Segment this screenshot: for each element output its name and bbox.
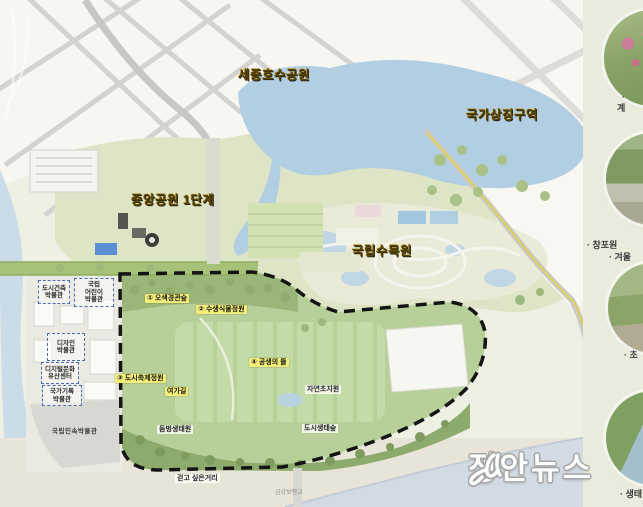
label-symbol-zone: 국가상징구역 (466, 104, 538, 123)
museum-label-line: 도시건축 (42, 285, 66, 292)
museum-label-line: 박물관 (53, 396, 71, 403)
label-national-arboretum: 국립수목원 (352, 240, 412, 259)
thumb2-caption-line2: · 겨울 (609, 250, 631, 263)
news-watermark: 정안뉴스 (468, 447, 594, 484)
thumb1-caption-line2: 계 (617, 101, 625, 114)
museum-label-line: 박물관 (85, 296, 103, 303)
zone-coexistence-field: ④ 공생의 뜰 (249, 358, 289, 367)
museum-label-line: 박물관 (57, 347, 75, 354)
park-plan-map: 세종호수공원 국가상징구역 중앙공원 1단계 국립수목원 ① 오색경관숲 ② 수… (0, 0, 643, 507)
zone-festival-garden: ③ 도시축제정원 (115, 374, 166, 383)
thumb3-caption-line1: · 초 (624, 348, 638, 361)
zone-leisure-path: 여가길 (165, 387, 188, 396)
museum-label-line: 디자인 (57, 340, 75, 347)
museum-label-line: 유산센터 (48, 373, 72, 380)
museum-label-line: 박물관 (45, 292, 63, 299)
place-geumgang-bridge: 금강보행교 (275, 487, 303, 496)
zone-five-color-forest: ① 오색경관숲 (145, 294, 189, 303)
label-lake-park: 세종호수공원 (238, 64, 310, 83)
museum-design: 디자인 박물관 (47, 333, 85, 361)
place-dumbeong-eco-garden: 둠벙생태원 (157, 425, 193, 434)
place-urban-eco-forest: 도시생태숲 (302, 424, 338, 433)
leaf-decoration (0, 0, 40, 130)
museum-urban-architecture: 도시건축 박물관 (38, 280, 70, 304)
news-logo-icon (468, 447, 512, 489)
thumb4-caption-line1: · 생태 (620, 487, 642, 500)
zone-aquatic-garden: ② 수생식물정원 (196, 305, 247, 314)
label-folk-museum: 국립민속박물관 (52, 425, 97, 435)
museum-national-archives: 국가기록 박물관 (42, 385, 82, 406)
white-building (386, 324, 468, 392)
museum-digital-heritage: 디지털문화 유산센터 (41, 362, 79, 384)
museum-label-line: 디지털문화 (45, 366, 75, 373)
museum-label-line: 국가기록 (50, 388, 74, 395)
museum-children: 국립 어린이 박물관 (74, 278, 114, 307)
phase2-pond (277, 393, 303, 407)
place-walkable-street: 걷고 싶은거리 (175, 474, 220, 483)
place-natural-grassland: 자연초지원 (305, 385, 341, 394)
museum-label-line: 국립 (88, 281, 100, 288)
label-central-park-phase1: 중앙공원 1단계 (131, 189, 214, 208)
